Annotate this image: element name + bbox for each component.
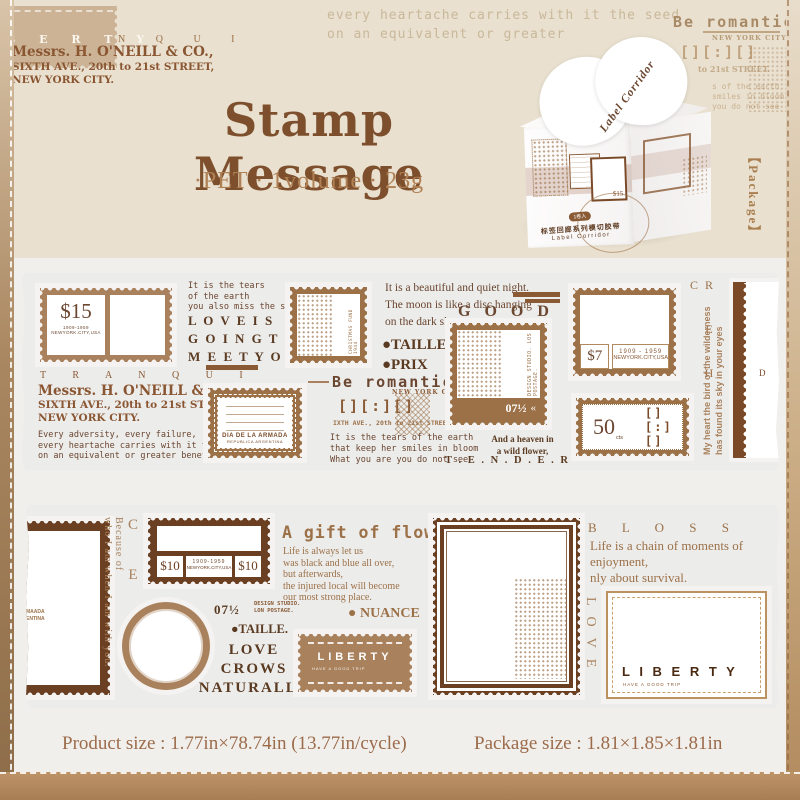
dollar10-stamp: $10 1909-1959 NEWYORK.CITY,USA $10 (148, 518, 270, 584)
perforation-edge (168, 289, 176, 361)
taille-label: ●TAILLE. (382, 337, 450, 354)
product-size-text: Product size : 1.77in×78.74in (13.77in/c… (62, 733, 407, 755)
frame-left-edge (0, 0, 14, 800)
product-box-photo: $15 1卷入 标签回廊系列模切胶带 Label Corridor Label … (498, 34, 720, 246)
perforation-edge (434, 691, 579, 699)
package-size-text: Package size : 1.81×1.85×1.81in (474, 733, 722, 755)
armada-fragment-text: MAADA ENTINA (26, 609, 45, 623)
gift-of-flowers-text: Life is always let us was black and blue… (283, 546, 400, 604)
ratio-label: 07½ (214, 602, 240, 618)
perforation-edge (543, 324, 551, 424)
christmas-vertical-text: CHRISTMAS FUND 1944 (349, 296, 359, 354)
perforation-edge (41, 358, 171, 366)
perforation-edge (408, 635, 416, 691)
liberty-subtitle: HAVE A GOOD TRIP (312, 666, 365, 671)
dollar7-stamp: $7 1909 - 1959 NEWYORK.CITY,USA (573, 288, 676, 376)
perforation-edge (672, 289, 680, 375)
liberty-title: L I B E R T Y (622, 664, 738, 679)
stamp-unit: cts (616, 435, 623, 441)
stamp-city: NEWYORK.CITY,USA (186, 565, 232, 570)
perforation-edge (577, 452, 688, 460)
header-address-line2: SIXTH AVE., 20th to 21st STREET, (12, 61, 214, 73)
stamp-blank-panel (157, 526, 261, 551)
box-front-caption: 1卷入 标签回廊系列模切胶带 Label Corridor (526, 201, 634, 243)
dollar15-stamp: $15 1909-1959 NEWYORK.CITY,USA (40, 288, 172, 362)
perforation-line (787, 0, 789, 800)
liberty-outline-stamp: L I B E R T Y HAVE A GOOD TRIP (606, 591, 767, 699)
box-heart-flap: Label Corridor (533, 32, 692, 143)
perforation-edge (149, 580, 269, 588)
perforation-line (10, 0, 12, 800)
liberty-subtitle: HAVE A GOOD TRIP (623, 682, 681, 687)
bloss-letters: B L O S S (588, 520, 740, 536)
tears-poem: It is the tears of the earth you also mi… (188, 281, 306, 313)
perforation-edge (574, 284, 675, 292)
dash-row (308, 682, 402, 684)
perforation-edge (299, 630, 411, 638)
bloss-quote: Life is a chain of moments of enjoyment,… (590, 538, 743, 586)
street-line: IXTH AVE., 20th to 21st STREET. (333, 419, 454, 427)
partial-armada-stamp: MAADA ENTINA (26, 521, 110, 695)
stamp-city: NEWYORK.CITY,USA (613, 355, 668, 361)
liberty-title: LIBERTY (298, 651, 412, 663)
grunge-border (733, 282, 746, 458)
prix-label: ●PRIX (382, 357, 428, 374)
header-be-romantic: Be romantic (673, 13, 794, 31)
tape-strip-2: MAADA ENTINA Because of who I am when I … (26, 505, 779, 708)
dotted-texture (514, 578, 567, 679)
perforation-edge (291, 359, 366, 367)
perforation-edge (149, 514, 269, 522)
accent-bar (513, 292, 560, 297)
ornate-frame-stamp (433, 518, 580, 695)
tender-word: T . E . N . D . E . R (445, 455, 570, 466)
rule-line (226, 414, 284, 415)
header-address-line1: Messrs. H. O'NEILL & CO., (12, 44, 214, 60)
partial-stamp-letter: D (759, 368, 766, 378)
box-badge: 1卷入 (568, 211, 591, 222)
package-vertical-label: 【Package】 (744, 150, 763, 240)
armada-stamp: DIA DE LA ARMADA REPUBLICA ARGENTINA (208, 388, 302, 458)
taille-label: ●TAILLE. (231, 622, 288, 637)
dotted-texture (297, 294, 334, 356)
perforation-edge (429, 519, 437, 694)
product-promo-image: B E R T Y N Q U I Messrs. H. O'NEILL & C… (0, 0, 800, 800)
rule-line (226, 406, 284, 407)
perforation-edge (26, 517, 109, 525)
stamp-value: 50 (593, 416, 615, 438)
perforation-edge (298, 389, 306, 457)
crosshatch-texture (395, 393, 430, 435)
perforation-edge (41, 284, 171, 292)
perforation-edge (4, 10, 113, 12)
perforation-edge (569, 289, 577, 375)
stamp-ratio-value: 07½ (506, 401, 527, 416)
armada-subtitle: REPUBLICA ARGENTINA (218, 439, 292, 444)
dotted-texture (748, 46, 790, 112)
tape-strip-1: $15 1909-1959 NEWYORK.CITY,USA It is the… (22, 273, 779, 470)
perforation-edge (434, 514, 579, 522)
stamp-value: $15 (47, 300, 105, 322)
box-dotted-stamp (682, 154, 707, 196)
perforation-edge (742, 283, 750, 457)
divider-line (703, 31, 780, 33)
header-new-york-city: NEW YORK CITY. (712, 34, 789, 42)
tranqui-letters: T R A N Q U I (40, 370, 255, 381)
perforation-edge (577, 394, 688, 402)
perforation-edge (36, 289, 44, 361)
because-vertical-quote: Because of who I am when I am with you. (102, 517, 124, 697)
perforation-edge (363, 288, 371, 362)
love-is-going-to-meet-you: L O V E I S G O I N G T O M E E T Y O U (188, 312, 299, 366)
design-studio-vertical-text: DESIGN STUDIO. LOS POSTAGE. (527, 332, 539, 396)
stamp-city: NEWYORK.CITY,USA (47, 330, 105, 335)
rule-line (226, 430, 284, 431)
perforation-edge (26, 691, 109, 699)
perforation-edge (266, 519, 274, 583)
stamp-value-right: $10 (235, 556, 261, 577)
perforation-edge (299, 688, 411, 696)
divider-line (308, 381, 329, 383)
stamp-blank-panel (110, 295, 165, 355)
address-line3: NEW YORK CITY. (38, 412, 140, 424)
rule-line (226, 422, 284, 423)
nuance-label: ● NUANCE (348, 606, 420, 622)
wilderness-vertical-quote: My heart the bird of the wilderness has … (701, 283, 725, 455)
chevrons-icon: « (531, 402, 537, 414)
love-grows-naturally: LOVE CROWS NATURALLY (198, 641, 310, 698)
dash-row (308, 642, 402, 644)
perforation-line (0, 772, 800, 774)
design-studio-stamp: DESIGN STUDIO. LOS POSTAGE. 07½ « (450, 323, 547, 425)
accent-bar (525, 299, 560, 303)
header-address-line3: NEW YORK CITY. (12, 74, 114, 86)
good-word: G O O D (458, 303, 554, 321)
frame-bottom-band (0, 772, 800, 800)
dotted-texture (457, 330, 503, 398)
liberty-solid-stamp: LIBERTY HAVE A GOOD TRIP (298, 634, 412, 692)
perforation-edge (451, 421, 546, 429)
product-specs-subtitle: ·PET · 1volume · 23g (150, 168, 468, 195)
circle-seal-stamp (122, 602, 210, 690)
box-dotted-stamp (531, 138, 568, 196)
love-vertical-letters: LOVE (582, 597, 598, 703)
brackets-motif: [][:][] (645, 406, 682, 448)
stamp-value-left: $10 (157, 556, 183, 577)
frame-right-edge (786, 0, 800, 800)
50cts-stamp: 50 cts [][:][] (576, 398, 689, 456)
christmas-stamp: CHRISTMAS FUND 1944 (290, 287, 367, 363)
perforation-edge (574, 372, 675, 380)
stamp-value: $7 (580, 344, 609, 369)
heaven-quote: And a heaven in a wild flower, (470, 433, 575, 457)
